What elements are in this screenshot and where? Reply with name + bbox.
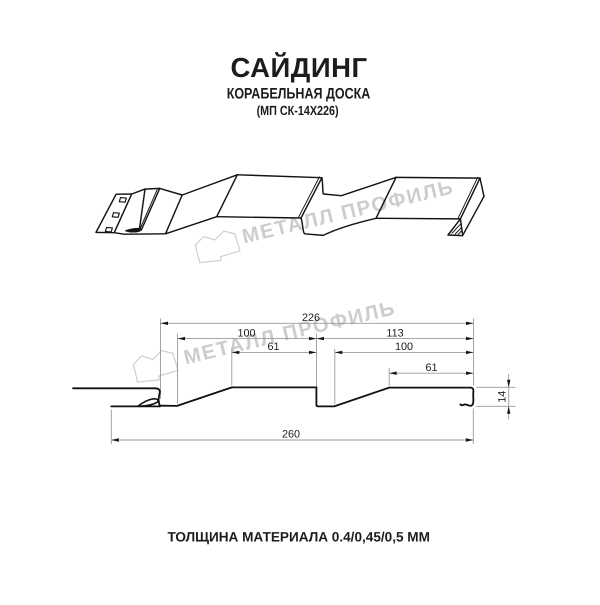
- svg-text:САЙДИНГ: САЙДИНГ: [230, 52, 367, 83]
- svg-text:14: 14: [497, 391, 509, 403]
- svg-text:(МП СК-14Х226): (МП СК-14Х226): [257, 103, 339, 118]
- svg-text:226: 226: [302, 312, 320, 324]
- svg-text:ТОЛЩИНА МАТЕРИАЛА 0.4/0,45/0,5: ТОЛЩИНА МАТЕРИАЛА 0.4/0,45/0,5 ММ: [167, 530, 430, 545]
- svg-text:113: 113: [386, 327, 403, 339]
- svg-text:КОРАБЕЛЬНАЯ ДОСКА: КОРАБЕЛЬНАЯ ДОСКА: [227, 86, 371, 103]
- svg-text:61: 61: [425, 362, 437, 374]
- svg-text:260: 260: [282, 429, 300, 441]
- svg-text:100: 100: [395, 341, 413, 353]
- svg-text:100: 100: [237, 327, 255, 339]
- svg-text:61: 61: [267, 341, 279, 353]
